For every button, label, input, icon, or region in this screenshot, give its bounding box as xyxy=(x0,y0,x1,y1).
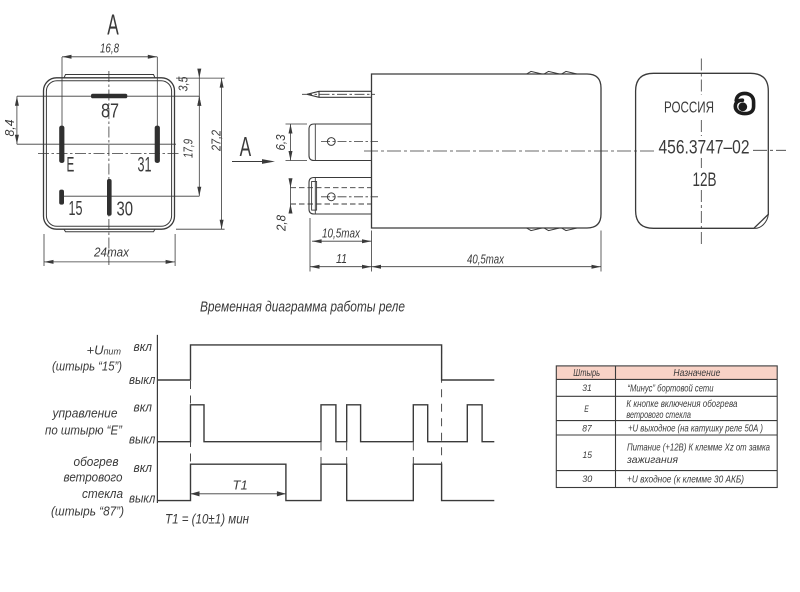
svg-text:87: 87 xyxy=(582,423,592,434)
svg-text:2,8: 2,8 xyxy=(274,214,289,232)
svg-text:ветрового: ветрового xyxy=(64,470,123,485)
svg-text:(штырь “87”): (штырь “87”) xyxy=(51,504,124,519)
svg-text:T1 = (10±1) мин: T1 = (10±1) мин xyxy=(165,512,249,527)
svg-text:12В: 12В xyxy=(693,170,717,191)
svg-text:вкл: вкл xyxy=(134,400,153,415)
svg-text:Е: Е xyxy=(584,404,589,415)
svg-text:“Минус” бортовой сети: “Минус” бортовой сети xyxy=(628,383,714,395)
svg-text:E: E xyxy=(67,153,75,176)
svg-text:обогрев: обогрев xyxy=(74,454,119,469)
svg-text:управление: управление xyxy=(52,406,118,421)
svg-text:Временная диаграмма работы рел: Временная диаграмма работы реле xyxy=(200,300,405,316)
svg-text:Штырь: Штырь xyxy=(573,367,600,379)
svg-text:10,5max: 10,5max xyxy=(322,226,360,241)
svg-text:+U входное (к клемме 30 АКБ): +U входное (к клемме 30 АКБ) xyxy=(627,473,744,485)
svg-text:ветрового стекла: ветрового стекла xyxy=(626,409,691,421)
svg-text:вкл: вкл xyxy=(134,460,153,475)
svg-text:27,2: 27,2 xyxy=(208,129,223,151)
svg-text:выкл: выкл xyxy=(129,490,156,505)
svg-text:31: 31 xyxy=(138,153,152,176)
svg-text:30: 30 xyxy=(117,199,134,221)
svg-text:Назначение: Назначение xyxy=(673,367,720,379)
svg-text:87: 87 xyxy=(101,101,119,123)
svg-text:+U выходное (на катушку реле 5: +U выходное (на катушку реле 50А ) xyxy=(628,422,763,434)
svg-text:T1: T1 xyxy=(233,478,248,493)
svg-text:РОССИЯ: РОССИЯ xyxy=(664,100,714,117)
svg-text:40,5max: 40,5max xyxy=(467,252,504,267)
svg-text:16,8: 16,8 xyxy=(100,41,120,56)
svg-text:по штырю “Е”: по штырю “Е” xyxy=(45,423,123,438)
svg-text:выкл: выкл xyxy=(129,372,156,387)
svg-text:31: 31 xyxy=(582,383,592,394)
svg-text:стекла: стекла xyxy=(82,486,123,501)
svg-text:вкл: вкл xyxy=(134,339,153,354)
svg-text:17,9: 17,9 xyxy=(181,139,196,158)
svg-text:15: 15 xyxy=(583,450,593,461)
svg-text:6,3: 6,3 xyxy=(273,134,288,151)
svg-text:выкл: выкл xyxy=(129,431,156,446)
svg-text:8,4: 8,4 xyxy=(2,120,17,137)
svg-text:3,5: 3,5 xyxy=(176,76,191,92)
svg-text:30: 30 xyxy=(582,474,593,485)
svg-text:(штырь “15”): (штырь “15”) xyxy=(52,359,122,374)
svg-text:24max: 24max xyxy=(93,245,129,260)
svg-text:A: A xyxy=(240,131,252,162)
svg-text:зажигания: зажигания xyxy=(626,454,678,466)
svg-text:11: 11 xyxy=(336,251,347,266)
svg-text:Питание (+12В) К клемме Хz от: Питание (+12В) К клемме Хz от замка xyxy=(627,442,770,454)
svg-text:15: 15 xyxy=(69,198,83,220)
svg-text:A: A xyxy=(107,10,119,42)
svg-text:456.3747–02: 456.3747–02 xyxy=(659,138,750,159)
